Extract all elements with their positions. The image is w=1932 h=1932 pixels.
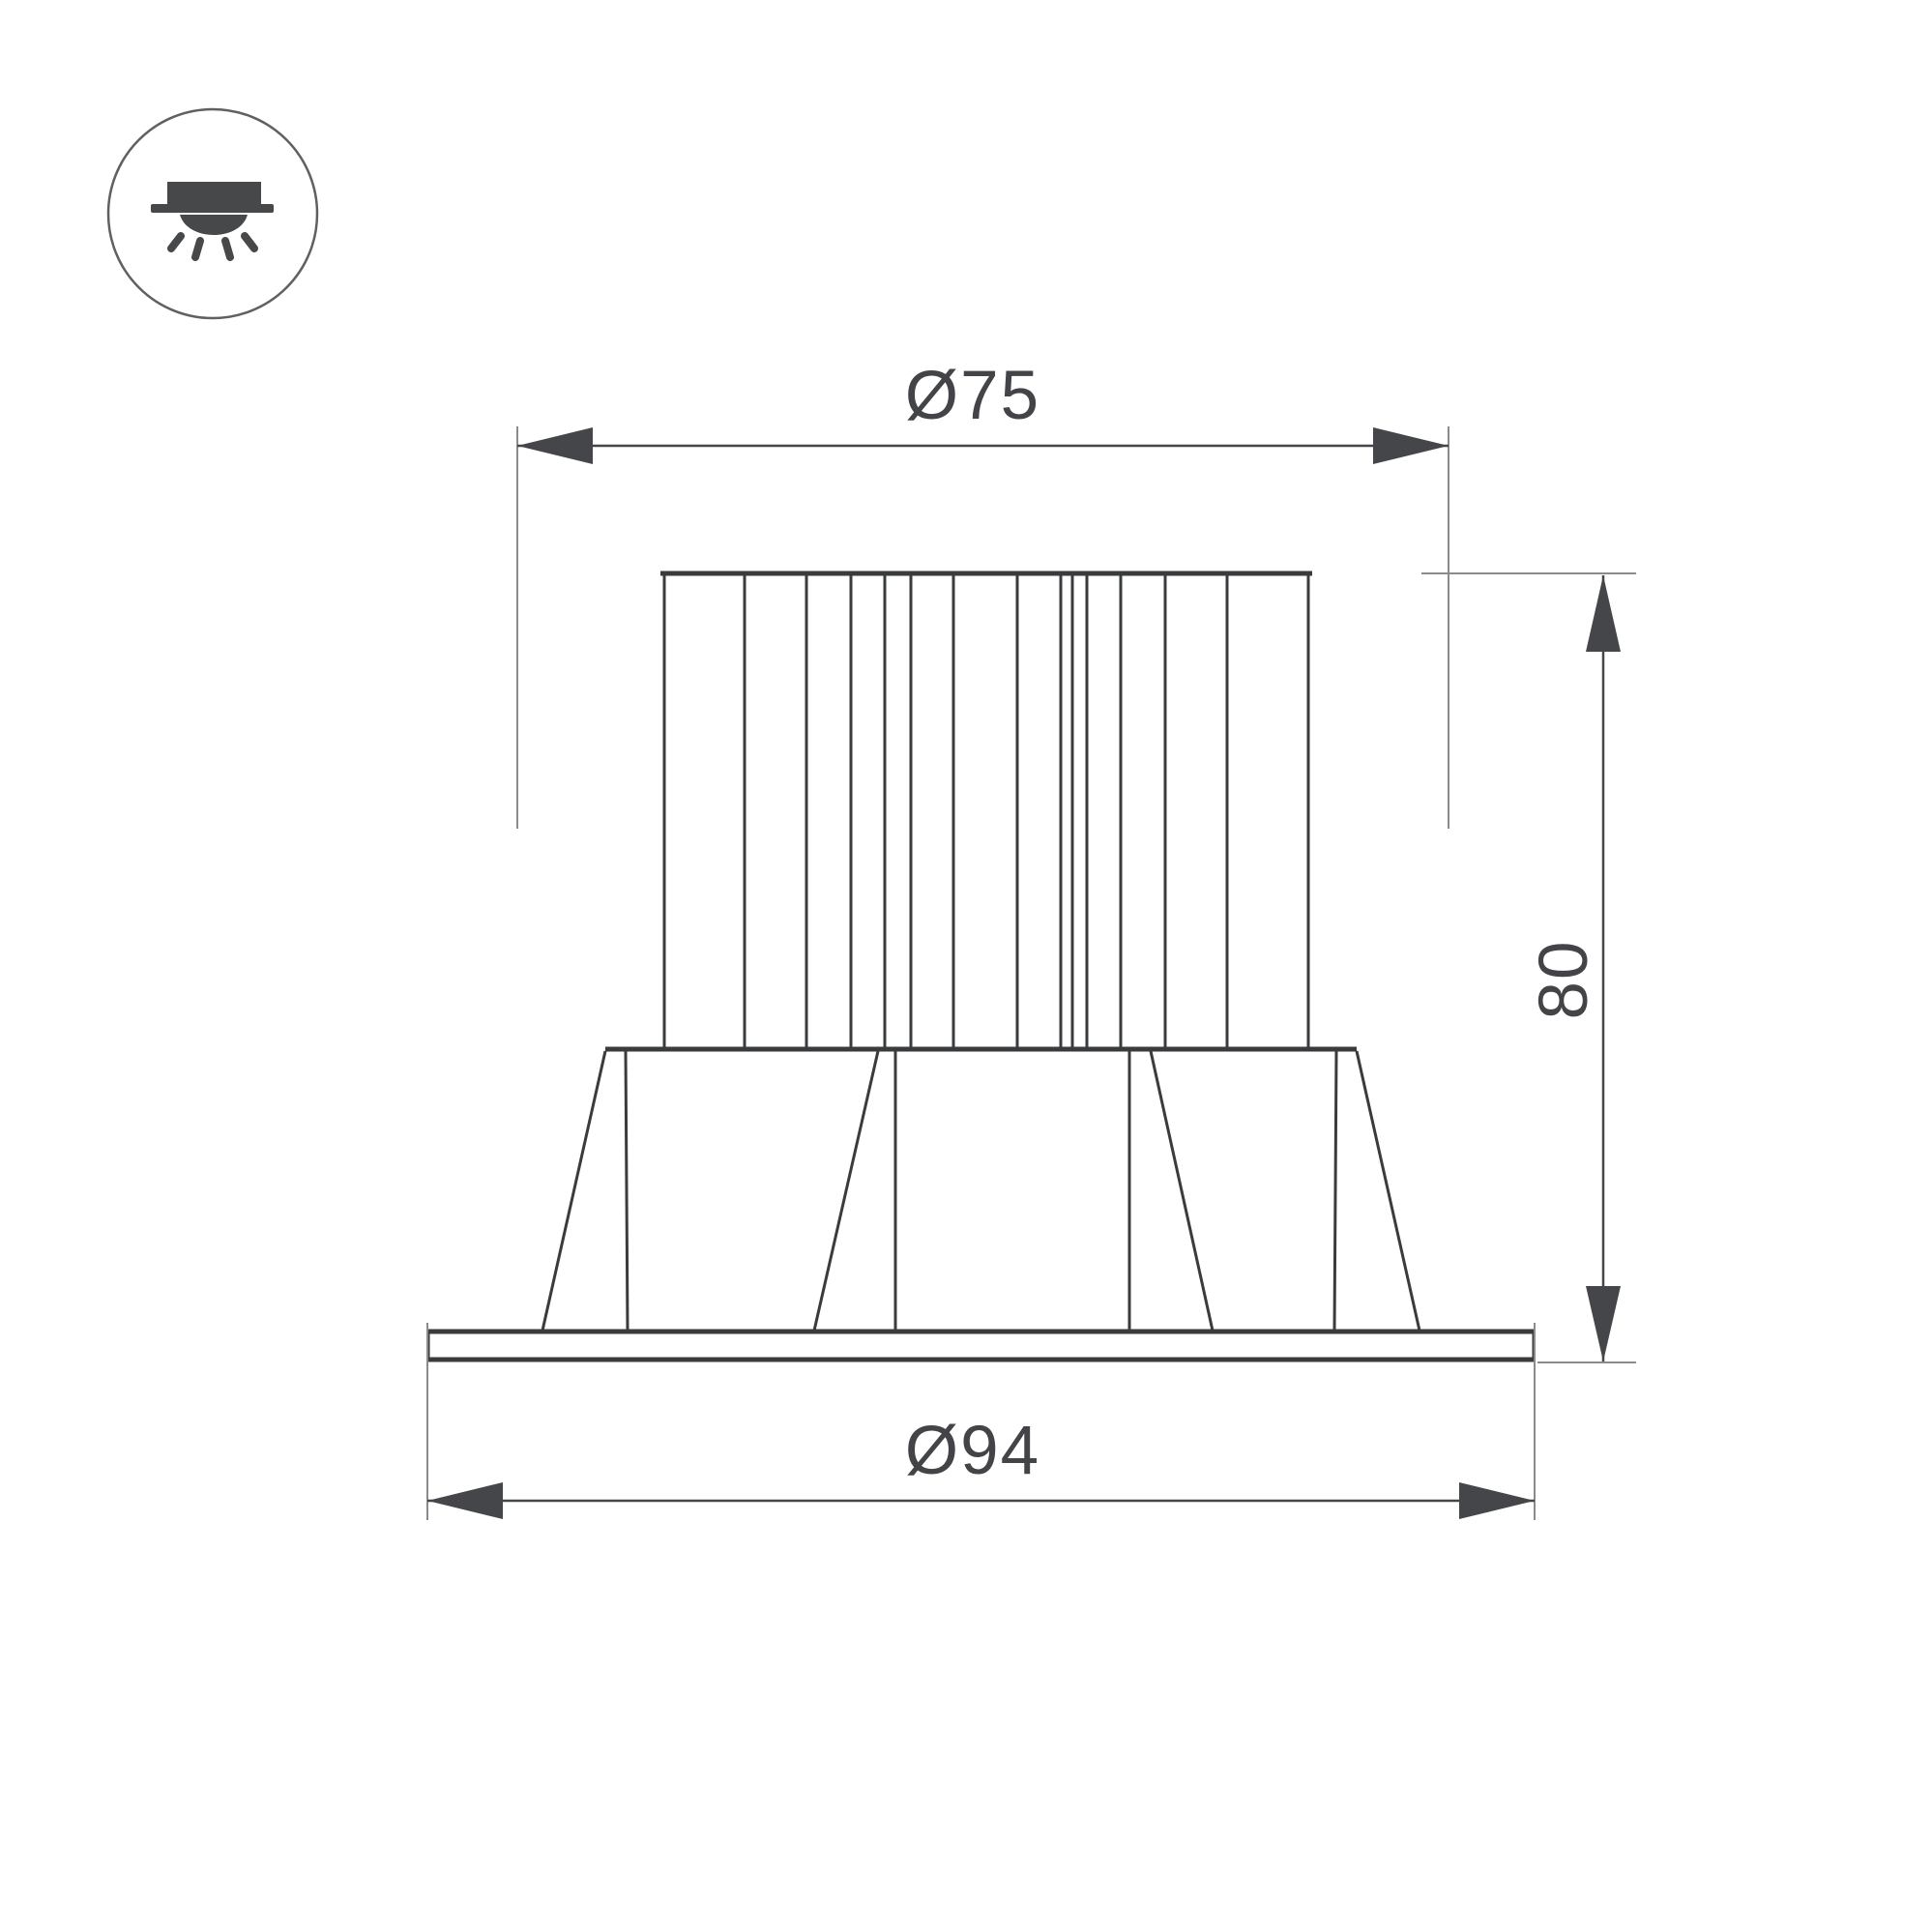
technical-drawing-canvas: Ø75 80 Ø94 bbox=[0, 0, 1932, 1932]
mounting-flange bbox=[427, 1330, 1535, 1361]
icon-ring bbox=[108, 109, 317, 318]
dimension-height: 80 bbox=[1421, 573, 1636, 1362]
dim-label-height: 80 bbox=[1526, 940, 1602, 1020]
heatsink bbox=[660, 573, 1312, 1049]
icon-lamp-body bbox=[167, 182, 261, 208]
arrow-right bbox=[1459, 1482, 1535, 1519]
dim-label-top-diameter: Ø75 bbox=[905, 358, 1040, 434]
lamp-body bbox=[542, 1049, 1420, 1331]
icon-ceiling-bar bbox=[151, 204, 274, 213]
arrow-left bbox=[427, 1482, 503, 1519]
heatsink-fins bbox=[745, 575, 1227, 1047]
body-panel-lines bbox=[626, 1051, 1336, 1331]
arrow-up bbox=[1586, 575, 1621, 652]
arrow-down bbox=[1586, 1286, 1621, 1361]
dim-label-flange-diameter: Ø94 bbox=[905, 1413, 1040, 1489]
dimension-flange-diameter: Ø94 bbox=[427, 1323, 1535, 1520]
arrow-right bbox=[1373, 427, 1449, 464]
arrow-left bbox=[517, 427, 593, 464]
recessed-downlight-icon bbox=[108, 109, 317, 318]
